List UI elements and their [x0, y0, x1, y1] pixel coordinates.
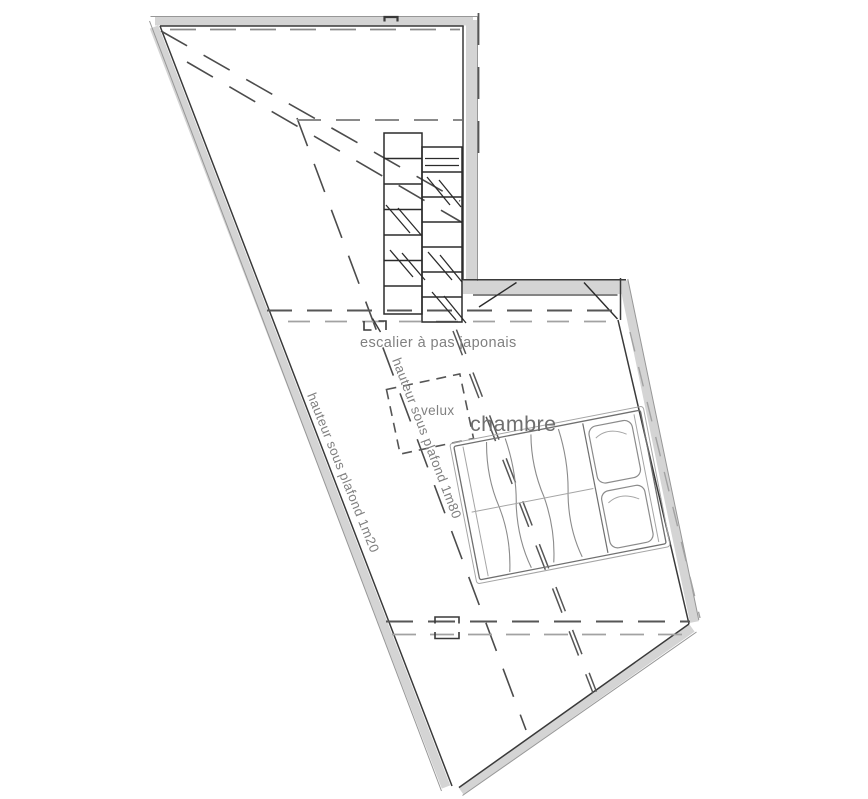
pillow-bottom [600, 484, 654, 549]
staircase [384, 133, 466, 323]
staircase-label: escalier à pas japonais [360, 335, 517, 351]
bed-pillow-divider [583, 423, 608, 553]
bedroom-label: chambre [470, 412, 556, 436]
floor-plan: escalier à pas japonais velux chambre ha… [0, 0, 868, 799]
break-marker-bottom-upper [435, 617, 459, 624]
ceiling-height-dashed-lines [161, 13, 700, 730]
wall-band-bottom [461, 628, 692, 791]
duvet-folds [459, 424, 606, 577]
wall-band-left [154, 27, 446, 787]
roof-slope-line-1 [161, 31, 460, 201]
stair-flight-right [422, 147, 462, 322]
stair-break-marks [386, 177, 466, 323]
pillow-top [588, 419, 642, 484]
